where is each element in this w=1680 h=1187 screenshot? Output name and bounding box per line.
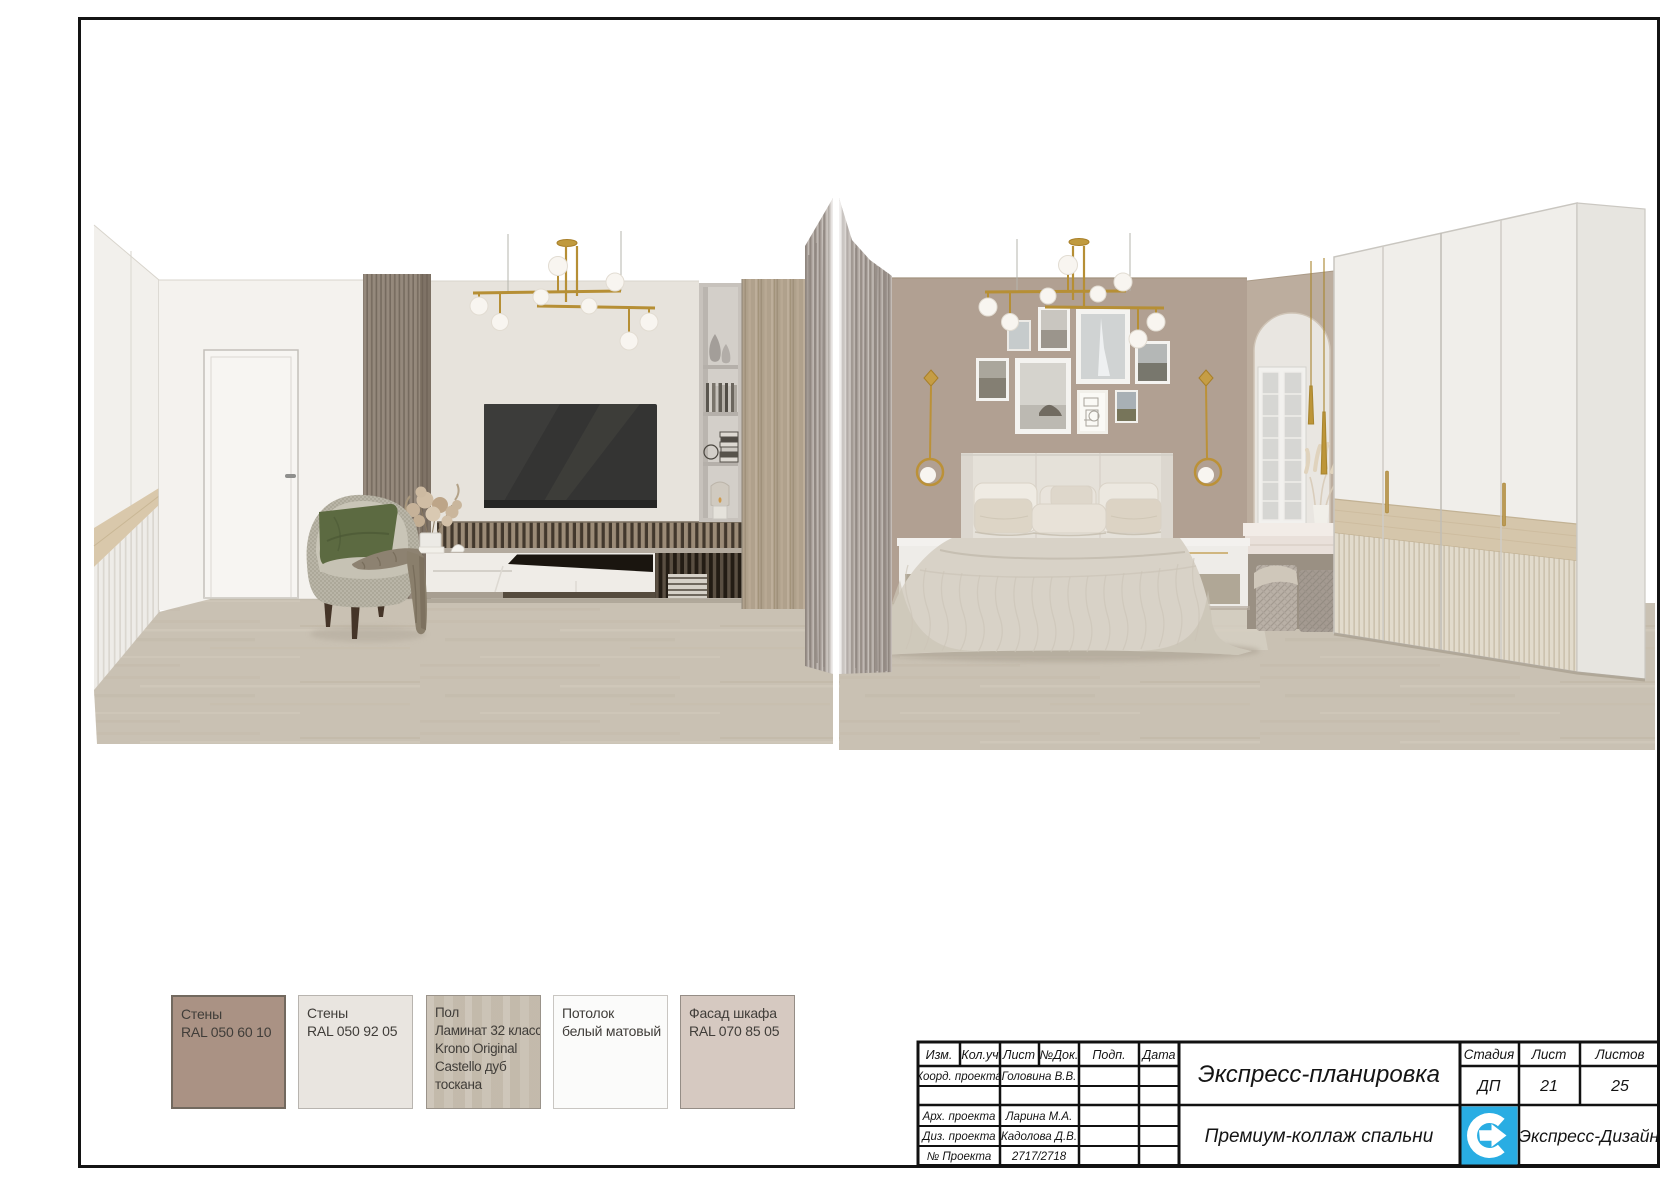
svg-text:Головина В.В.: Головина В.В. [1002, 1071, 1077, 1083]
svg-text:№ Проекта: № Проекта [927, 1151, 992, 1163]
svg-text:Лист: Лист [1002, 1048, 1035, 1062]
svg-text:Кол.уч: Кол.уч [961, 1048, 999, 1062]
svg-text:Кадолова Д.В.: Кадолова Д.В. [1001, 1131, 1077, 1143]
svg-text:Диз. проекта: Диз. проекта [920, 1131, 995, 1143]
svg-text:№Док.: №Док. [1040, 1048, 1079, 1062]
svg-text:25: 25 [1610, 1078, 1629, 1095]
svg-text:Премиум-коллаж спальни: Премиум-коллаж спальни [1205, 1126, 1434, 1147]
svg-text:Подп.: Подп. [1092, 1048, 1125, 1062]
svg-text:2717/2718: 2717/2718 [1011, 1151, 1067, 1163]
svg-text:Экспресс-Дизайн: Экспресс-Дизайн [1519, 1126, 1660, 1146]
svg-text:21: 21 [1539, 1078, 1558, 1095]
svg-text:Лист: Лист [1531, 1047, 1567, 1062]
svg-text:Экспресс-планировка: Экспресс-планировка [1198, 1061, 1440, 1088]
svg-text:Стадия: Стадия [1464, 1047, 1515, 1062]
svg-text:Дата: Дата [1141, 1048, 1176, 1062]
svg-text:Коорд. проекта: Коорд. проекта [916, 1071, 1002, 1083]
svg-text:Арх. проекта: Арх. проекта [922, 1111, 996, 1123]
svg-text:Листов: Листов [1594, 1047, 1644, 1062]
svg-text:ДП: ДП [1476, 1078, 1501, 1095]
svg-text:Ларина М.А.: Ларина М.А. [1005, 1111, 1073, 1123]
svg-text:Изм.: Изм. [926, 1048, 953, 1062]
